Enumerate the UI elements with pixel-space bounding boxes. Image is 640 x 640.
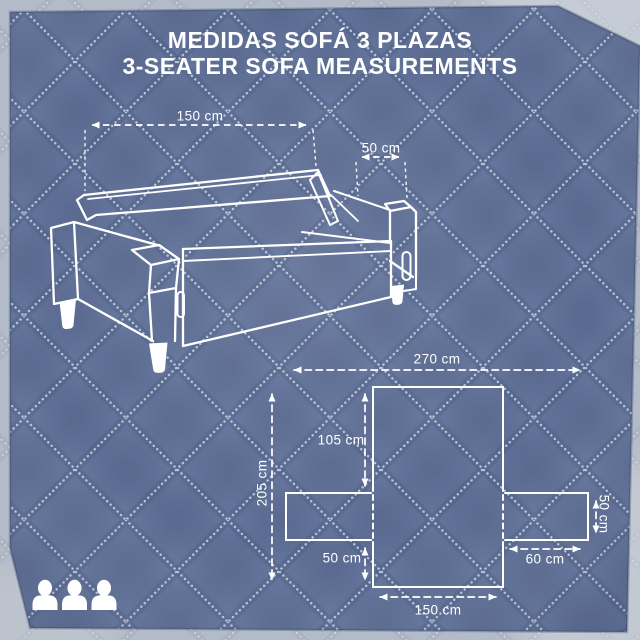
layout-side-flap-height-label: 50 cm bbox=[597, 495, 612, 534]
layout-total-length-label: 205 cm bbox=[255, 460, 270, 507]
layout-total-width-label: 270 cm bbox=[414, 352, 461, 367]
scene-canvas bbox=[0, 0, 640, 640]
layout-front-drop-label: 50 cm bbox=[323, 551, 362, 566]
title-line-english: 3-SEATER SOFA MEASUREMENTS bbox=[0, 53, 640, 79]
title-line-spanish: MEDIDAS SOFÁ 3 PLAZAS bbox=[0, 27, 640, 53]
sofa-arm-depth-label: 50 cm bbox=[362, 141, 401, 156]
page-title: MEDIDAS SOFÁ 3 PLAZAS 3-SEATER SOFA MEAS… bbox=[0, 27, 640, 79]
layout-backrest-drop-label: 105 cm bbox=[318, 433, 365, 448]
seater-icons bbox=[33, 580, 117, 610]
cover-fabric-panel bbox=[0, 0, 640, 640]
sofa-cover-infographic: MEDIDAS SOFÁ 3 PLAZAS 3-SEATER SOFA MEAS… bbox=[0, 0, 640, 640]
sofa-width-label: 150 cm bbox=[177, 109, 224, 124]
layout-seat-width-label: 150 cm bbox=[415, 603, 462, 618]
layout-side-flap-width-label: 60 cm bbox=[526, 552, 565, 567]
